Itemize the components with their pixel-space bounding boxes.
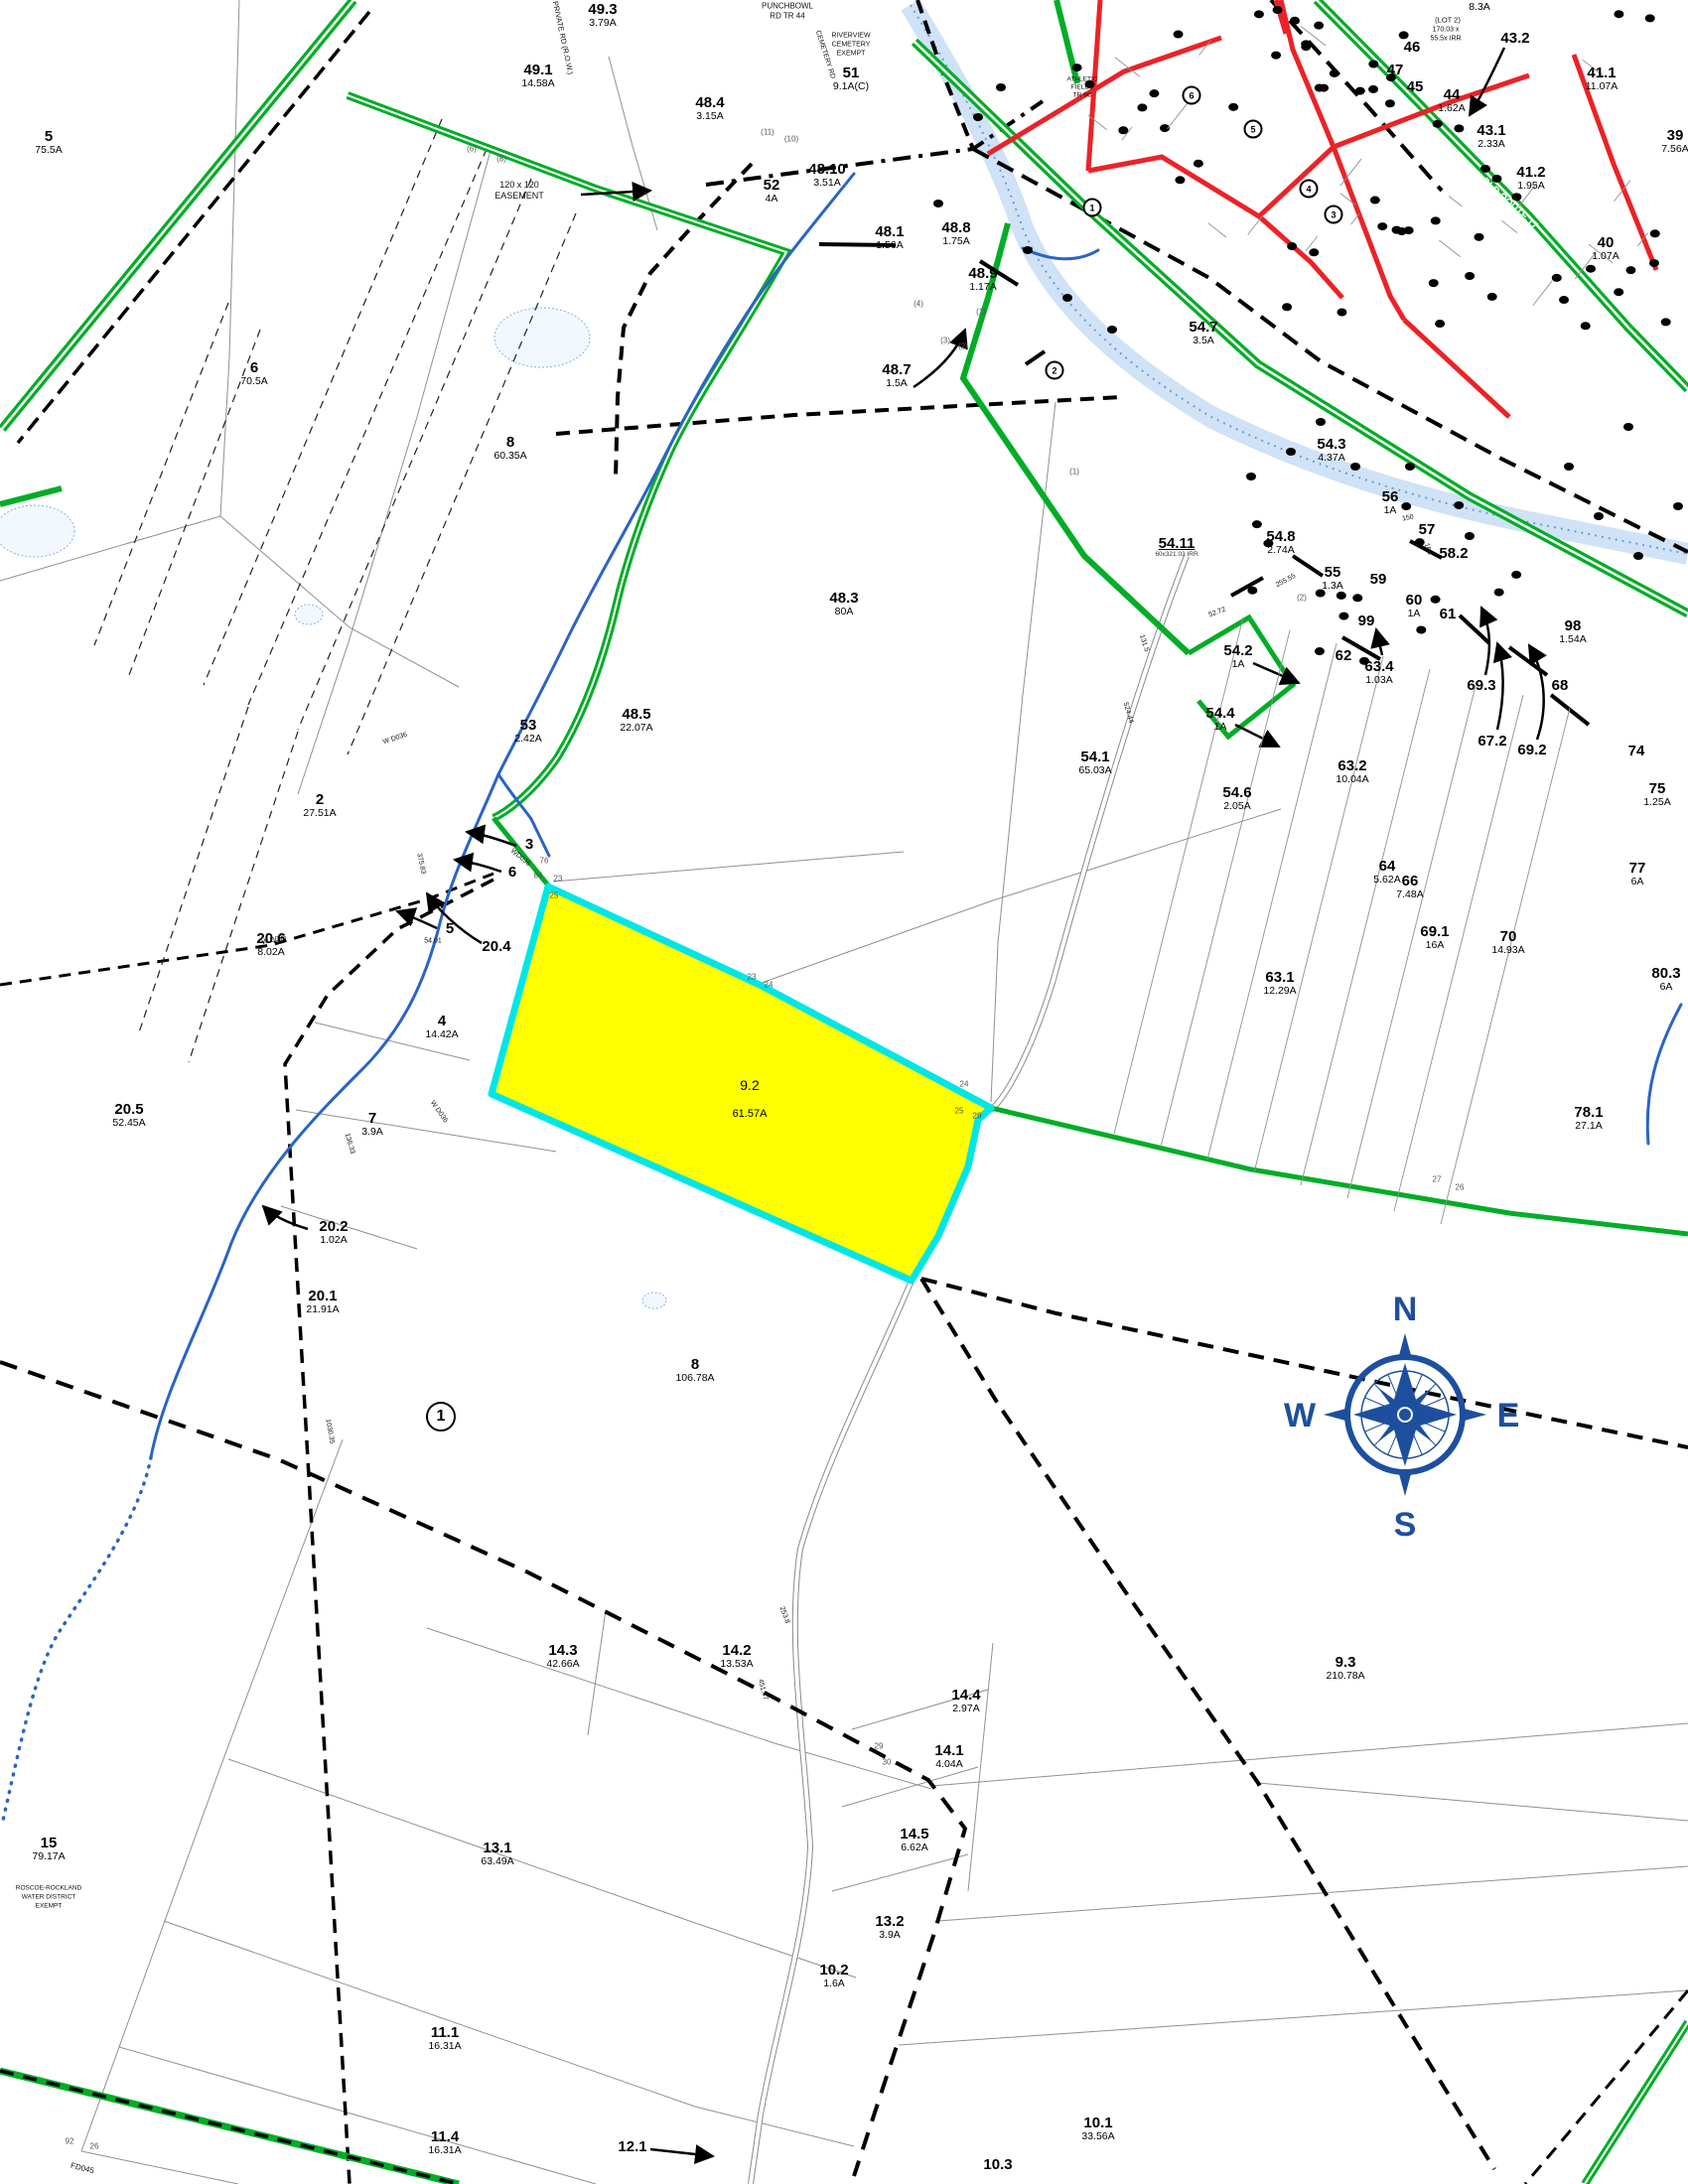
- parcel-label: 68: [1552, 678, 1569, 694]
- parcel-label: 14.342.66A: [546, 1643, 579, 1670]
- parcel-label: 45: [1407, 79, 1424, 95]
- edge-ref-number: (6): [467, 145, 477, 154]
- map-annotation: 1030.35: [324, 1419, 335, 1444]
- parcel-label: 532.42A: [514, 718, 541, 745]
- map-annotation: 166: [1423, 542, 1434, 555]
- map-annotation: 52.72: [1208, 607, 1227, 619]
- parcel-label: 10.133.56A: [1081, 2116, 1114, 2142]
- parcel-label: 63.41.03A: [1364, 659, 1393, 686]
- parcel-label: 48.71.5A: [882, 362, 911, 389]
- parcel-label: 63.112.29A: [1263, 970, 1296, 997]
- parcel-label: 99: [1358, 614, 1375, 629]
- parcel-label: 575.5A: [35, 129, 62, 156]
- parcel-label: 6: [508, 865, 516, 881]
- edge-ref-number: 26: [1456, 1183, 1465, 1192]
- parcel-label: 61: [1440, 607, 1457, 622]
- edge-ref-number: 23: [554, 875, 563, 884]
- circled-zone-number: 1: [426, 1402, 456, 1432]
- map-annotation: EASEMENT: [494, 191, 544, 201]
- map-annotation: EXEMPT: [837, 51, 866, 58]
- circled-zone-number: 2: [1046, 361, 1064, 380]
- parcel-label: 11.416.31A: [428, 2129, 461, 2156]
- parcel-label: 551.3A: [1322, 565, 1343, 592]
- parcel-label: 69.3: [1467, 678, 1495, 694]
- edge-ref-number: 25: [550, 891, 559, 900]
- map-annotation: 375.83: [415, 853, 426, 875]
- edge-ref-number: (10): [784, 135, 798, 144]
- parcel-label: 401.07A: [1592, 235, 1618, 262]
- parcel-label: 48.91.17A: [968, 266, 997, 293]
- map-annotation: WATER DISTRICT: [22, 1894, 76, 1901]
- map-annotation: CEMETERY: [832, 42, 871, 49]
- map-annotation: 524.44: [1122, 702, 1135, 725]
- parcel-label: 667.48A: [1396, 874, 1423, 900]
- highlighted-parcel-label[interactable]: 9.2 61.57A: [733, 1077, 768, 1121]
- parcel-label: 10.3: [983, 2157, 1012, 2173]
- parcel-label: 59: [1370, 572, 1387, 588]
- parcel-label: 69.2: [1517, 743, 1546, 758]
- edge-ref-number: 23: [748, 973, 757, 982]
- circled-zone-number: 5: [1244, 120, 1263, 139]
- edge-ref-number: (4): [914, 300, 923, 309]
- parcel-label: 981.54A: [1559, 618, 1586, 645]
- parcel-label: 670.5A: [240, 360, 267, 387]
- parcel-label: 860.35A: [493, 435, 526, 462]
- circled-zone-number: 3: [1325, 205, 1343, 224]
- parcel-label: 20.552.45A: [112, 1102, 145, 1129]
- parcel-label: 524A: [764, 178, 780, 205]
- parcel-label: 46: [1404, 40, 1421, 56]
- parcel-label: 397.56A: [1661, 128, 1688, 155]
- parcel-label: 20.21.02A: [319, 1219, 348, 1246]
- highlighted-parcel-acreage: 61.57A: [733, 1108, 768, 1121]
- parcel-label: 14.42.97A: [951, 1688, 980, 1714]
- edge-ref-number: 92: [66, 2137, 74, 2146]
- parcel-label: 48.11.56A: [875, 224, 904, 251]
- edge-ref-number: 84: [534, 872, 543, 881]
- parcel-label: 43.2: [1500, 31, 1529, 47]
- map-annotation: TR 9C: [1073, 92, 1092, 99]
- circled-zone-number: 1: [1083, 199, 1102, 217]
- parcel-label: 54.73.5A: [1189, 320, 1217, 346]
- parcel-label: 227.51A: [303, 792, 336, 819]
- parcel-label: 78.127.1A: [1574, 1105, 1603, 1132]
- parcel-label: 74: [1628, 744, 1645, 759]
- parcel-label: 9.3210.78A: [1326, 1655, 1364, 1682]
- parcel-label: 54.62.05A: [1222, 785, 1251, 812]
- parcel-label: 601A: [1406, 593, 1423, 619]
- parcel-label: 13.23.9A: [875, 1914, 904, 1941]
- edge-ref-number: (1): [1069, 468, 1079, 477]
- map-annotation: RD TR 44: [770, 12, 804, 21]
- parcel-label: 48.81.75A: [941, 220, 970, 247]
- map-annotation: (LOT 2): [1435, 16, 1461, 25]
- edge-ref-number: (2): [958, 342, 968, 351]
- parcel-label: 41.111.07A: [1586, 66, 1618, 92]
- edge-ref-number: 29: [875, 1742, 884, 1751]
- edge-ref-number: 29: [973, 1112, 982, 1121]
- parcel-label: 13.163.49A: [481, 1841, 513, 1867]
- parcel-label: 519.1A(C): [833, 66, 869, 92]
- map-annotation: 150: [1402, 513, 1415, 522]
- parcel-label: 49.114.58A: [521, 63, 554, 89]
- parcel-label: 48.380A: [829, 591, 858, 617]
- parcel-label: 41.21.95A: [1516, 165, 1545, 192]
- parcel-label: 67.2: [1477, 734, 1506, 750]
- map-annotation: PUNCHBOWL: [762, 2, 813, 11]
- map-annotation: 54.01: [424, 938, 442, 945]
- edge-ref-number: 30: [883, 1758, 892, 1767]
- parcel-label: 48.103.51A: [808, 162, 846, 189]
- map-annotation: W D036: [429, 1100, 449, 1125]
- map-annotation: 136.33: [344, 1133, 356, 1156]
- parcel-label: 20.121.91A: [306, 1289, 339, 1315]
- parcel-label: 8.3A: [1469, 2, 1490, 13]
- circled-zone-number: 6: [1183, 86, 1201, 105]
- parcel-label: 54.21A: [1223, 643, 1252, 670]
- map-annotation: 131.5: [1138, 634, 1150, 653]
- edge-ref-number: 26: [90, 2142, 99, 2151]
- parcel-label: 48.43.15A: [695, 95, 724, 122]
- circled-zone-number: 4: [1300, 180, 1319, 199]
- parcel-label: 11.116.31A: [428, 2025, 461, 2052]
- map-annotation: 255.55: [1275, 573, 1297, 589]
- parcel-label: 776A: [1629, 861, 1646, 887]
- parcel-label: 14.56.62A: [900, 1827, 928, 1853]
- map-annotation: ROSCOE-ROCKLAND: [16, 1885, 81, 1892]
- parcel-map-canvas[interactable]: N S E W 9.2 61.57A 575.5A670.5A860.35A22…: [0, 0, 1688, 2184]
- parcel-label: 751.25A: [1643, 781, 1670, 808]
- parcel-label: 8106.78A: [675, 1357, 714, 1384]
- highlighted-parcel-id: 9.2: [733, 1077, 768, 1094]
- map-annotation: RIVERVIEW: [831, 33, 870, 40]
- map-annotation: W D036: [382, 732, 408, 746]
- edge-ref-number: (2): [1297, 594, 1307, 603]
- parcel-label: 14.213.53A: [720, 1643, 753, 1670]
- parcel-label: 10.21.6A: [819, 1963, 848, 1989]
- parcel-label: 54.82.74A: [1266, 529, 1295, 556]
- parcel-label: 63.210.04A: [1336, 758, 1368, 785]
- parcel-label: 73.9A: [361, 1111, 383, 1138]
- map-annotation: FIELDS: [1071, 84, 1094, 91]
- parcel-label: 5: [446, 921, 454, 937]
- parcel-label: 62: [1336, 648, 1352, 664]
- parcel-label: 414.42A: [425, 1014, 458, 1040]
- edge-ref-number: 76: [540, 857, 549, 866]
- parcel-label: 7014.93A: [1491, 929, 1524, 956]
- parcel-label: 561A: [1382, 489, 1399, 516]
- parcel-label: 69.116A: [1420, 924, 1449, 951]
- parcel-label: 54.165.03A: [1078, 750, 1111, 776]
- edge-ref-number: 24: [765, 981, 774, 990]
- parcel-label: 54.1160x321.03 IRR: [1155, 536, 1197, 559]
- parcel-label: 54.34.37A: [1317, 437, 1345, 464]
- parcel-label: 54.41A: [1205, 706, 1234, 733]
- map-labels-layer: 9.2 61.57A 575.5A670.5A860.35A227.51A20.…: [0, 0, 1688, 2184]
- map-annotation: FD045: [70, 2161, 94, 2176]
- parcel-label: 48.522.07A: [620, 707, 652, 734]
- parcel-label: 14.14.04A: [934, 1743, 963, 1770]
- edge-ref-number: 25: [955, 1107, 964, 1116]
- edge-ref-number: (8): [496, 155, 506, 164]
- parcel-label: 80.36A: [1651, 966, 1680, 993]
- map-annotation: 120 x 120: [499, 180, 539, 190]
- map-annotation: EXEMPT: [36, 1903, 63, 1910]
- parcel-label: 12.1: [618, 2139, 646, 2155]
- map-annotation: 170.03 x: [1433, 27, 1460, 34]
- edge-ref-number: (3): [940, 337, 950, 345]
- parcel-label: 57: [1419, 522, 1436, 538]
- map-annotation: ATHLETIC: [1067, 76, 1098, 83]
- edge-ref-number: 24: [960, 1080, 969, 1089]
- map-annotation: 451.47: [757, 1679, 769, 1701]
- map-annotation: 55.5x IRR: [1430, 36, 1461, 43]
- parcel-label: 58.2: [1439, 546, 1468, 562]
- edge-ref-number: (1): [976, 308, 986, 317]
- parcel-label: 441.62A: [1438, 87, 1465, 114]
- parcel-label: 43.12.33A: [1477, 123, 1505, 150]
- parcel-label: 1579.17A: [32, 1836, 65, 1862]
- map-annotation: 253.8: [778, 1606, 791, 1625]
- parcel-label: 20.4: [482, 939, 510, 955]
- parcel-label: 3: [525, 837, 533, 853]
- parcel-label: 47: [1387, 63, 1404, 78]
- parcel-label: 49.33.79A: [588, 2, 617, 29]
- edge-ref-number: 27: [1433, 1175, 1442, 1184]
- edge-ref-number: (11): [761, 128, 774, 137]
